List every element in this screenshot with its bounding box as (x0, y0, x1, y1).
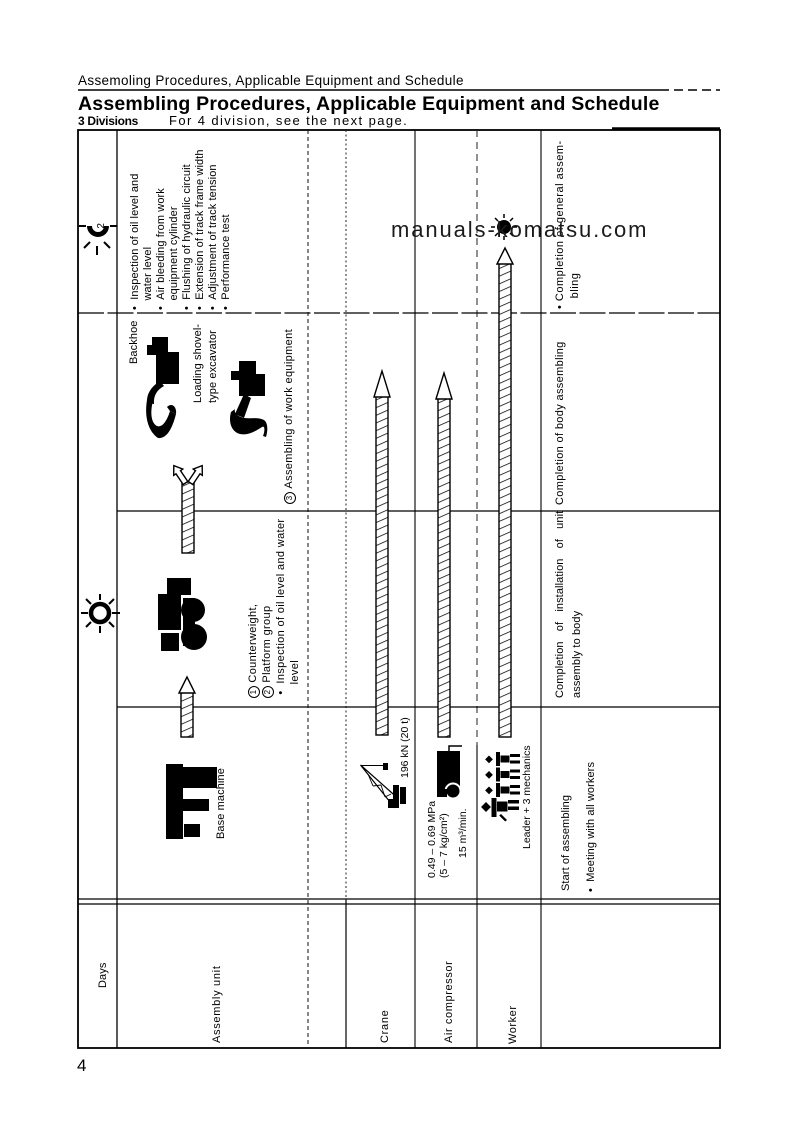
svg-text:2: 2 (96, 223, 107, 229)
